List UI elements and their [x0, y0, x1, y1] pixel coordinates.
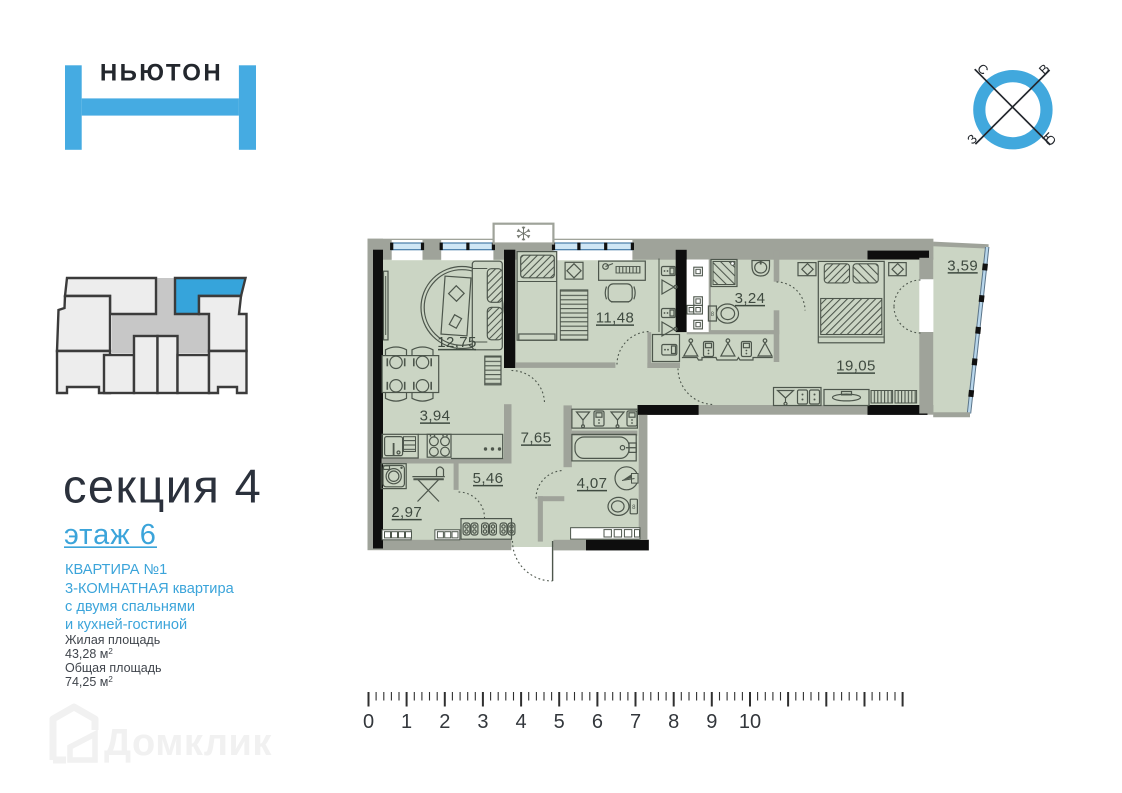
svg-text:Домклик: Домклик	[104, 722, 272, 764]
svg-text:43,28 м2: 43,28 м2	[65, 647, 113, 661]
svg-text:Общая площадь: Общая площадь	[65, 661, 162, 675]
svg-text:КВАРТИРА №1: КВАРТИРА №1	[65, 562, 167, 578]
svg-text:3,59: 3,59	[947, 257, 978, 274]
svg-text:1: 1	[401, 711, 412, 733]
svg-text:10: 10	[739, 711, 761, 733]
svg-text:7: 7	[630, 711, 641, 733]
svg-text:5: 5	[554, 711, 565, 733]
svg-text:3: 3	[477, 711, 488, 733]
svg-text:2,97: 2,97	[391, 504, 422, 521]
svg-text:С: С	[974, 61, 991, 78]
svg-text:Жилая площадь: Жилая площадь	[65, 633, 160, 647]
svg-text:4,07: 4,07	[577, 475, 608, 492]
svg-text:3,94: 3,94	[420, 408, 451, 425]
svg-text:6: 6	[592, 711, 603, 733]
svg-text:7,65: 7,65	[521, 430, 552, 447]
svg-text:12,75: 12,75	[437, 334, 477, 351]
svg-text:4: 4	[516, 711, 527, 733]
svg-text:0: 0	[363, 711, 374, 733]
svg-text:этаж 6: этаж 6	[64, 519, 157, 551]
svg-text:В: В	[1036, 61, 1053, 78]
svg-text:З: З	[964, 131, 980, 147]
svg-text:74,25 м2: 74,25 м2	[65, 675, 113, 689]
svg-text:8: 8	[668, 711, 679, 733]
svg-text:секция 4: секция 4	[63, 460, 262, 513]
svg-text:и кухней-гостиной: и кухней-гостиной	[65, 617, 187, 633]
svg-text:с двумя спальнями: с двумя спальнями	[65, 599, 195, 615]
svg-text:19,05: 19,05	[836, 358, 876, 375]
svg-text:2: 2	[439, 711, 450, 733]
svg-text:9: 9	[706, 711, 717, 733]
svg-text:11,48: 11,48	[596, 310, 634, 327]
svg-text:3,24: 3,24	[735, 290, 766, 307]
svg-text:5,46: 5,46	[473, 470, 504, 487]
svg-text:НЬЮТОН: НЬЮТОН	[100, 60, 223, 87]
svg-text:3-КОМНАТНАЯ квартира: 3-КОМНАТНАЯ квартира	[65, 581, 235, 597]
